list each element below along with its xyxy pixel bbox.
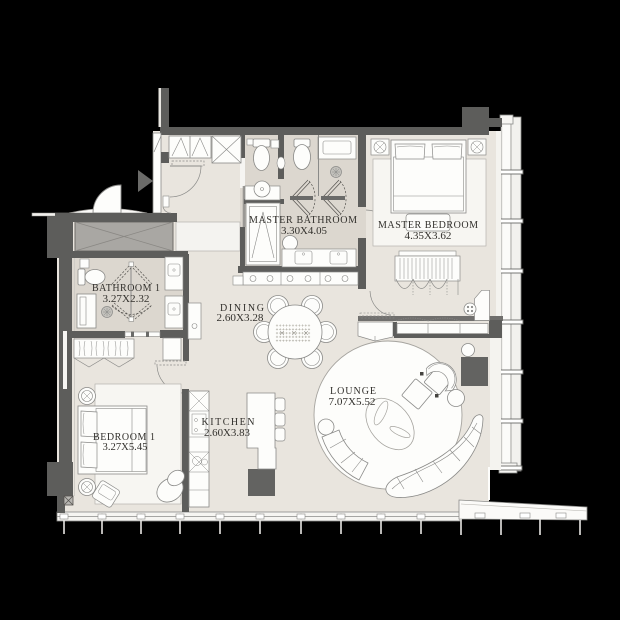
svg-text:3.27X2.32: 3.27X2.32: [103, 294, 150, 305]
svg-text:3.30X4.05: 3.30X4.05: [281, 226, 327, 237]
svg-text:MASTER BEDROOM: MASTER BEDROOM: [378, 220, 478, 231]
svg-text:3.27X5.45: 3.27X5.45: [103, 442, 148, 453]
svg-text:BATHROOM 1: BATHROOM 1: [92, 283, 160, 294]
svg-text:KITCHEN: KITCHEN: [202, 417, 255, 428]
svg-text:7.07X5.52: 7.07X5.52: [329, 397, 376, 408]
svg-text:2.60X3.83: 2.60X3.83: [204, 428, 250, 439]
svg-text:LOUNGE: LOUNGE: [330, 386, 376, 397]
svg-text:4.35X3.62: 4.35X3.62: [405, 231, 452, 242]
svg-text:2.60X3.28: 2.60X3.28: [217, 313, 264, 324]
svg-text:MASTER BATHROOM: MASTER BATHROOM: [249, 215, 357, 226]
